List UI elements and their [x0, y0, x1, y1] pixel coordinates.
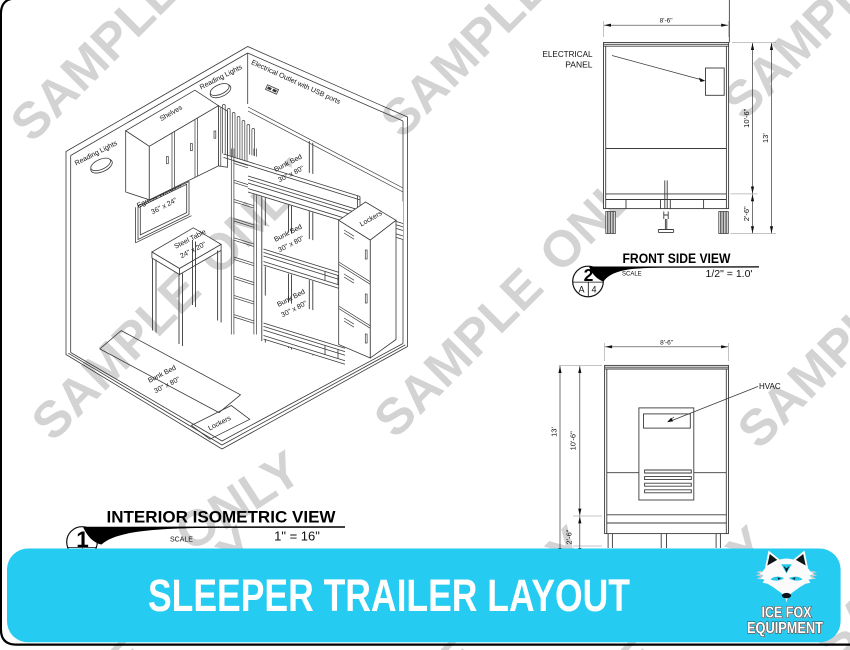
- svg-text:INTERIOR ISOMETRIC VIEW: INTERIOR ISOMETRIC VIEW: [107, 508, 337, 527]
- svg-text:13': 13': [550, 427, 559, 437]
- svg-text:SCALE: SCALE: [170, 536, 193, 543]
- svg-text:1" = 16": 1" = 16": [274, 529, 320, 544]
- svg-text:2'-6": 2'-6": [565, 529, 574, 544]
- svg-text:8'-6": 8'-6": [660, 339, 674, 346]
- svg-text:EQUIPMENT: EQUIPMENT: [747, 620, 823, 637]
- svg-text:SLEEPER TRAILER LAYOUT: SLEEPER TRAILER LAYOUT: [148, 570, 630, 621]
- svg-text:10'-6": 10'-6": [569, 431, 578, 450]
- svg-text:8'-6": 8'-6": [660, 18, 674, 25]
- svg-text:4: 4: [591, 285, 596, 295]
- svg-text:2'-6": 2'-6": [742, 206, 751, 221]
- svg-text:PANEL: PANEL: [565, 60, 593, 70]
- svg-text:ELECTRICAL: ELECTRICAL: [543, 49, 593, 59]
- svg-text:13': 13': [761, 133, 770, 143]
- svg-text:FRONT SIDE VIEW: FRONT SIDE VIEW: [623, 251, 731, 266]
- svg-text:HVAC: HVAC: [759, 382, 781, 391]
- svg-text:10'-6": 10'-6": [742, 108, 751, 127]
- svg-text:1/2" = 1.0': 1/2" = 1.0': [706, 268, 753, 280]
- svg-text:A: A: [578, 285, 584, 295]
- svg-text:SCALE: SCALE: [622, 272, 642, 278]
